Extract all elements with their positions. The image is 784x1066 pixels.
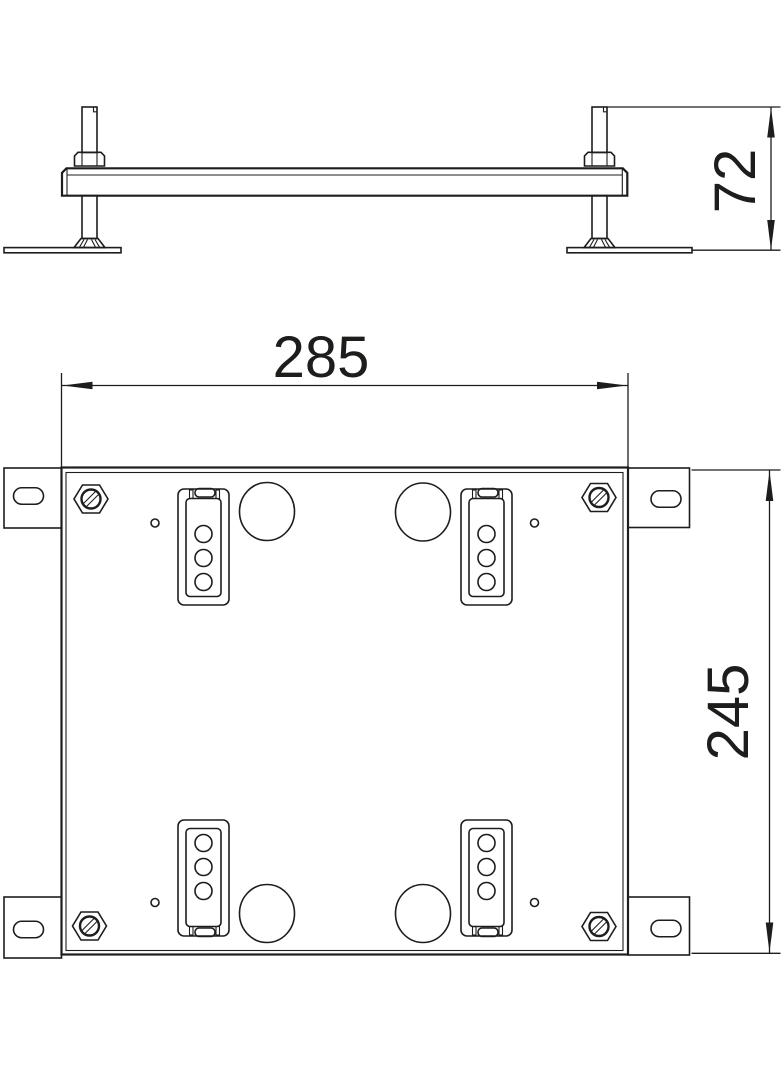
- cable-hole-top-right: [396, 483, 451, 541]
- foot-plate-right: [567, 248, 692, 253]
- dim-285-arrow-left: [63, 382, 93, 390]
- tab-slot-bottom-left: [14, 921, 44, 938]
- dim-72-arrow-down: [767, 220, 775, 250]
- device-bracket-bottom-right: [461, 820, 512, 937]
- base-plate-inner-edge: [66, 473, 623, 951]
- mounting-tab-bottom-left: [4, 897, 62, 958]
- dim-depth-label: 245: [700, 632, 758, 792]
- cable-hole-top-left: [240, 483, 295, 541]
- device-bracket-top-right: [461, 489, 512, 606]
- dim-245-arrow-down: [766, 923, 774, 953]
- plan-view: [4, 373, 781, 958]
- cable-hole-bottom-right: [396, 885, 451, 943]
- corner-screw-bottom-right: [582, 913, 616, 941]
- dim-245-arrow-up: [766, 471, 774, 501]
- cable-hole-bottom-left: [240, 885, 295, 943]
- tab-slot-top-right: [651, 491, 681, 508]
- mounting-tab-top-left: [4, 468, 62, 528]
- technical-drawing-page: 285 72 245: [0, 0, 784, 1066]
- foot-plate-left: [4, 248, 121, 253]
- device-bracket-bottom-left: [178, 820, 229, 937]
- corner-screw-top-left: [74, 485, 108, 513]
- dim-width-label: 285: [241, 329, 401, 387]
- drawing-canvas: [0, 0, 784, 1066]
- pilot-hole-top-left: [151, 519, 159, 527]
- base-plate-outline: [62, 468, 629, 955]
- tab-slot-bottom-right: [651, 920, 681, 937]
- dim-72-arrow-up: [767, 108, 775, 138]
- tab-slot-top-left: [14, 488, 44, 505]
- pilot-hole-bottom-right: [531, 899, 539, 907]
- corner-screw-top-right: [582, 484, 616, 512]
- corner-screw-bottom-left: [73, 912, 107, 940]
- leveling-screw-left: [74, 107, 105, 248]
- dim-height-label: 72: [707, 121, 765, 241]
- pilot-hole-bottom-left: [151, 899, 159, 907]
- dim-285-arrow-right: [597, 382, 627, 390]
- device-bracket-top-left: [178, 489, 229, 606]
- leveling-screw-right: [584, 107, 615, 248]
- crossbar: [62, 168, 627, 195]
- side-view: [4, 107, 781, 253]
- pilot-hole-top-right: [531, 519, 539, 527]
